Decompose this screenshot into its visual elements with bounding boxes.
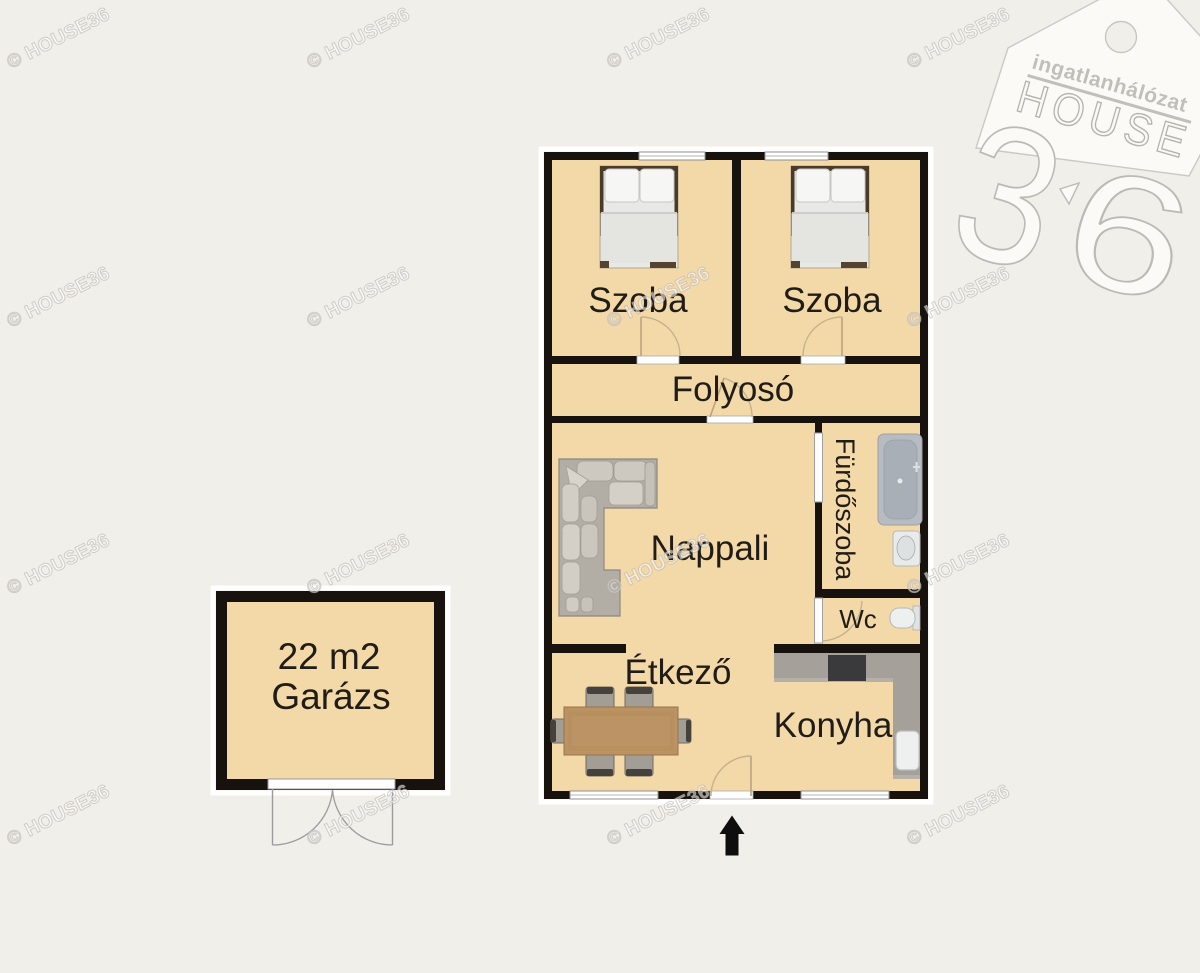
svg-text:22 m2: 22 m2 — [278, 636, 381, 677]
svg-text:Konyha: Konyha — [774, 706, 893, 745]
svg-text:Wc: Wc — [839, 604, 877, 634]
svg-text:Szoba: Szoba — [782, 281, 882, 320]
svg-text:Fürdőszoba: Fürdőszoba — [830, 438, 860, 582]
svg-text:Étkező: Étkező — [625, 653, 732, 692]
svg-text:Garázs: Garázs — [271, 676, 390, 717]
svg-text:Folyosó: Folyosó — [672, 370, 795, 409]
